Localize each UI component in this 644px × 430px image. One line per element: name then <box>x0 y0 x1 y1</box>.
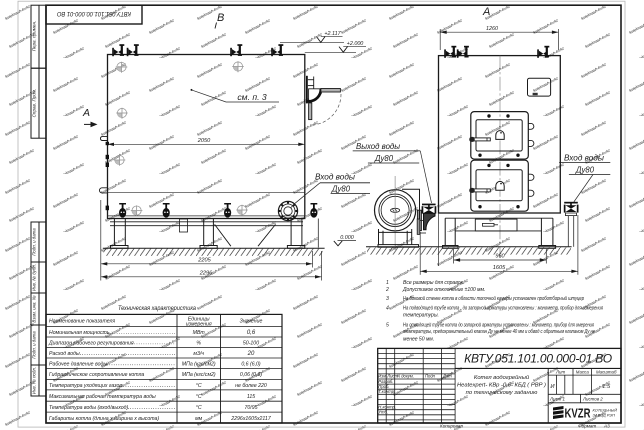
svg-text:МПа (кгс/см2): МПа (кгс/см2) <box>182 372 216 378</box>
svg-text:Лист 1: Лист 1 <box>549 396 566 401</box>
svg-text:Техническая характеристика: Техническая характеристика <box>118 305 196 312</box>
svg-text:На подводящей трубе котла ,: На подводящей трубе котла , до запорной … <box>403 305 603 312</box>
svg-text:мм: мм <box>195 416 203 422</box>
svg-text:+2.117: +2.117 <box>324 31 341 37</box>
svg-text:°С: °С <box>196 405 202 411</box>
svg-text:1605: 1605 <box>493 265 506 271</box>
svg-text:Формат: Формат <box>578 424 596 429</box>
svg-text:МПа (кгс/см2): МПа (кгс/см2) <box>182 362 216 368</box>
svg-text:5: 5 <box>386 323 389 329</box>
svg-text:КВТУ.051.101.00.000-01 ВО: КВТУ.051.101.00.000-01 ВО <box>56 10 131 17</box>
svg-text:МВт: МВт <box>193 330 206 336</box>
svg-text:+2.000: +2.000 <box>347 41 364 47</box>
svg-text:Котел водогрейный: Котел водогрейный <box>474 374 530 381</box>
svg-text:менее 50 мм.: менее 50 мм. <box>403 336 434 342</box>
svg-text:Листов 2: Листов 2 <box>582 396 603 401</box>
svg-text:ЗАВОД РЭП: ЗАВОД РЭП <box>593 413 616 418</box>
svg-text:Вход воды: Вход воды <box>315 172 355 182</box>
svg-text:3: 3 <box>386 296 389 302</box>
svg-text:Максимальная рабочая температу: Максимальная рабочая температура воды <box>49 394 156 400</box>
svg-text:2050: 2050 <box>197 138 211 144</box>
svg-text:0,6 (6,0): 0,6 (6,0) <box>241 362 261 368</box>
svg-text:2205: 2205 <box>197 257 211 263</box>
svg-text:Наименование показателя: Наименование показателя <box>49 319 115 325</box>
svg-text:А3: А3 <box>603 424 610 429</box>
svg-text:не более 220: не более 220 <box>235 383 267 389</box>
svg-text:960: 960 <box>495 254 505 260</box>
svg-text:Дат: Дат <box>442 374 452 379</box>
svg-text:A: A <box>82 107 90 119</box>
svg-text:2: 2 <box>385 287 389 293</box>
svg-text:температуры.: температуры. <box>403 313 439 319</box>
svg-text:Инв. № дубл.: Инв. № дубл. <box>32 264 37 291</box>
svg-text:°С: °С <box>196 394 202 400</box>
svg-text:N докум.: N докум. <box>397 374 414 379</box>
svg-text:Выход воды: Выход воды <box>356 141 400 151</box>
svg-text:Габариты котла (длина х ширина: Габариты котла (длина х ширина х высота) <box>49 416 159 422</box>
svg-text:115: 115 <box>247 394 255 400</box>
svg-text:1:5: 1:5 <box>602 384 611 390</box>
svg-text:1260: 1260 <box>486 26 498 32</box>
svg-text:Heatexpert- КВр -0,6- КБД ( РВ: Heatexpert- КВр -0,6- КБД ( РВР ) <box>457 383 546 389</box>
svg-text:Подп. и дата: Подп. и дата <box>32 228 37 256</box>
svg-text:температуры, предохранительный: температуры, предохранительный клапан Ду… <box>403 328 595 335</box>
svg-text:Перв. примен.: Перв. примен. <box>32 21 37 52</box>
svg-text:Справ. Прим.: Справ. Прим. <box>32 89 37 118</box>
svg-text:B: B <box>217 12 224 24</box>
svg-text:Ду80: Ду80 <box>374 153 393 163</box>
svg-text:м3/ч: м3/ч <box>193 351 204 357</box>
svg-text:70/95: 70/95 <box>245 405 258 411</box>
svg-text:Температура воды (вход/выход): Температура воды (вход/выход) <box>49 405 128 411</box>
svg-text:20: 20 <box>247 351 255 357</box>
svg-text:KVZR: KVZR <box>565 406 591 420</box>
svg-text:Т.контр.: Т.контр. <box>378 389 395 394</box>
svg-text:0.000: 0.000 <box>340 235 354 241</box>
svg-text:Вход воды: Вход воды <box>564 152 604 162</box>
svg-text:Утб.: Утб. <box>378 409 388 414</box>
svg-text:0,6: 0,6 <box>247 330 256 336</box>
svg-text:Ду80: Ду80 <box>331 184 350 194</box>
svg-text:Ду80: Ду80 <box>575 165 594 175</box>
svg-text:2296: 2296 <box>199 270 213 276</box>
svg-text:по техническому заданию: по техническому заданию <box>466 390 538 396</box>
svg-text:Все размеры для справок.: Все размеры для справок. <box>403 280 464 286</box>
svg-text:A: A <box>482 6 490 18</box>
svg-text:4: 4 <box>386 306 389 312</box>
svg-text:Расход воды: Расход воды <box>49 351 80 357</box>
svg-text:На боковой стенке котла в обла: На боковой стенке котла в области топочн… <box>403 295 584 302</box>
svg-text:измерения: измерения <box>186 322 212 328</box>
svg-text:Масса: Масса <box>576 369 590 374</box>
svg-text:Взам. инв. №: Взам. инв. № <box>32 295 37 322</box>
svg-text:Лит: Лит <box>555 369 565 374</box>
svg-text:см. п. 3: см. п. 3 <box>237 92 266 102</box>
svg-text:Температура уходящих газов: Температура уходящих газов <box>49 383 122 389</box>
svg-text:КВТУ.051.101.00.000-01 ВО: КВТУ.051.101.00.000-01 ВО <box>464 352 612 366</box>
svg-text:Инв. № подл.: Инв. № подл. <box>32 367 37 394</box>
svg-text:Масштаб: Масштаб <box>596 369 617 374</box>
svg-text:1: 1 <box>386 280 389 286</box>
svg-text:%: % <box>196 341 201 347</box>
svg-text:50-100: 50-100 <box>243 341 259 347</box>
svg-text:Гидравлическое сопротивление к: Гидравлическое сопротивление котла <box>49 372 144 378</box>
svg-text:2296х1605х2117: 2296х1605х2117 <box>230 416 272 422</box>
svg-text:Подп. и дата: Подп. и дата <box>32 331 37 359</box>
svg-text:Копировал: Копировал <box>440 424 463 429</box>
svg-text:0,06 (0,6): 0,06 (0,6) <box>240 372 262 378</box>
svg-text:°С: °С <box>196 383 202 389</box>
svg-text:Рабочее давление воды: Рабочее давление воды <box>49 362 107 368</box>
svg-text:Номинальная мощность: Номинальная мощность <box>49 330 110 336</box>
svg-text:Значение: Значение <box>240 319 263 325</box>
svg-text:Допустимое отклонение ±100 мм: Допустимое отклонение ±100 мм. <box>402 287 485 293</box>
svg-text:На отводящей трубе котла до за: На отводящей трубе котла до запорной арм… <box>403 322 594 329</box>
svg-text:Подп: Подп <box>425 374 436 379</box>
svg-text:Диапазон рабочего регулировани: Диапазон рабочего регулирования <box>48 341 134 347</box>
